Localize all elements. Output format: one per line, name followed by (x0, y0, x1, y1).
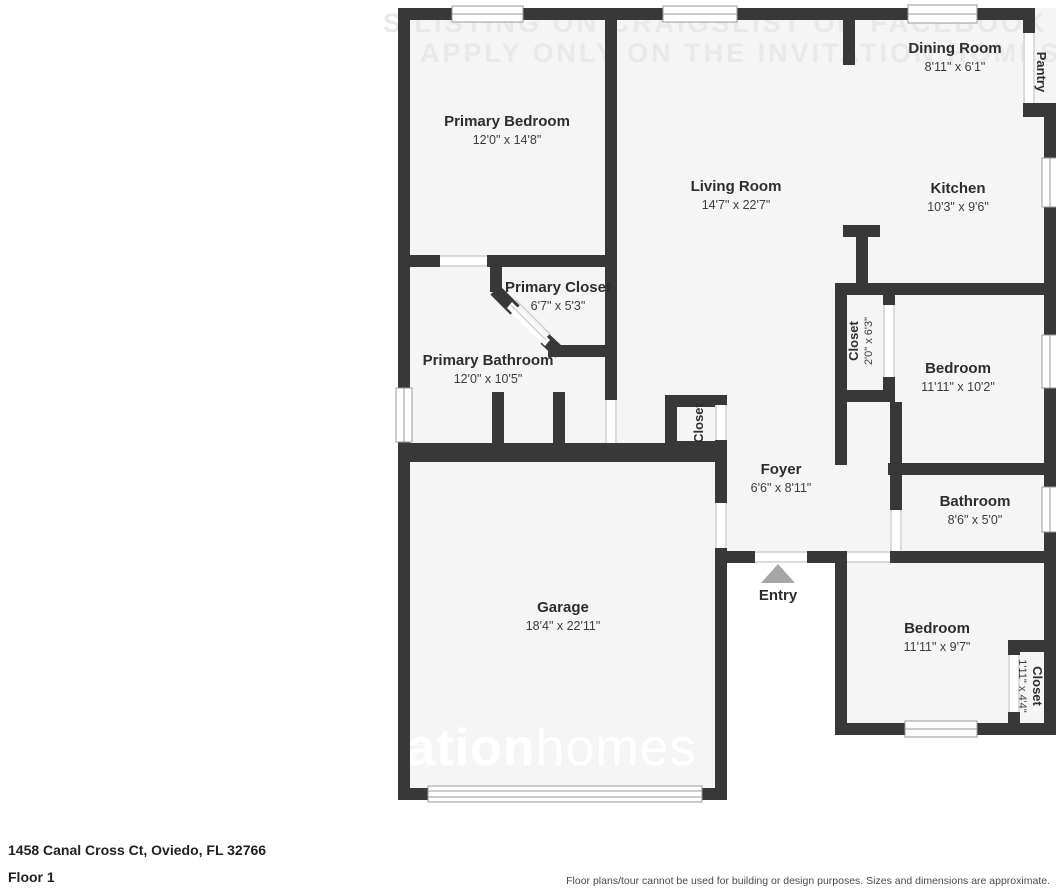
room-dims: 6'7" x 5'3" (500, 299, 616, 314)
room-name: Dining Room (875, 40, 1035, 59)
room-name: Primary Bedroom (407, 113, 607, 132)
floorplan-page: S LISTING ON CRAIGSLIST OR FACEBOOK MARK… (0, 0, 1056, 889)
room-name: Bathroom (895, 493, 1055, 512)
room-dims: 12'0" x 10'5" (398, 372, 578, 387)
room-label-primary-closet: Primary Closet 6'7" x 5'3" (500, 279, 616, 314)
room-label-dining-room: Dining Room 8'11" x 6'1" (875, 40, 1035, 75)
room-label-primary-bathroom: Primary Bathroom 12'0" x 10'5" (398, 352, 578, 387)
window-icon (663, 6, 737, 22)
room-label-entry: Entry (718, 587, 838, 606)
room-name: Living Room (636, 178, 836, 197)
room-dims: 2'0" x 6'3" (863, 317, 876, 365)
door-opening (755, 551, 807, 563)
disclaimer-text: Floor plans/tour cannot be used for buil… (566, 875, 1050, 887)
door-opening (440, 255, 487, 267)
room-label-living-room: Living Room 14'7" x 22'7" (636, 178, 836, 213)
room-label-pantry: Pantry (1033, 52, 1049, 92)
room-label-foyer: Foyer 6'6" x 8'11" (701, 461, 861, 496)
room-dims: 18'4" x 22'11" (463, 619, 663, 634)
room-dims: 8'6" x 5'0" (895, 513, 1055, 528)
room-dims: 1'11" x 4'4" (1015, 659, 1028, 712)
room-label-garage: Garage 18'4" x 22'11" (463, 599, 663, 634)
room-dims: 10'3" x 9'6" (878, 200, 1038, 215)
room-label-primary-bedroom: Primary Bedroom 12'0" x 14'8" (407, 113, 607, 148)
room-label-foyer-closet: Closet (691, 403, 707, 443)
room-dims: 6'6" x 8'11" (701, 481, 861, 496)
garage-door-icon (428, 786, 702, 802)
room-label-bathroom: Bathroom 8'6" x 5'0" (895, 493, 1055, 528)
room-label-kitchen: Kitchen 10'3" x 9'6" (878, 180, 1038, 215)
room-dims: 8'11" x 6'1" (875, 60, 1035, 75)
room-dims: 14'7" x 22'7" (636, 198, 836, 213)
room-label-hall-closet: Closet 2'0" x 6'3" (846, 317, 876, 365)
floor-label: Floor 1 (8, 869, 55, 885)
window-icon (905, 721, 977, 737)
room-label-bedroom-3: Bedroom 11'11" x 9'7" (857, 620, 1017, 655)
room-label-bedroom-2: Bedroom 11'11" x 10'2" (878, 360, 1038, 395)
room-dims: 12'0" x 14'8" (407, 133, 607, 148)
room-name: Closet (691, 403, 707, 443)
room-name: Closet (846, 317, 862, 365)
room-name: Kitchen (878, 180, 1038, 199)
door-opening (715, 503, 727, 548)
window-icon (1042, 335, 1056, 388)
room-name: Bedroom (857, 620, 1017, 639)
room-label-bedroom-3-closet: Closet 1'11" x 4'4" (1015, 659, 1045, 712)
room-name: Foyer (701, 461, 861, 480)
room-name: Primary Closet (500, 279, 616, 298)
window-icon (396, 388, 412, 442)
room-name: Closet (1029, 659, 1045, 712)
room-dims: 11'11" x 9'7" (857, 640, 1017, 655)
window-icon (1042, 158, 1056, 207)
room-name: Primary Bathroom (398, 352, 578, 371)
room-name: Entry (718, 587, 838, 606)
window-icon (908, 5, 977, 23)
room-name: Garage (463, 599, 663, 618)
room-name: Pantry (1033, 52, 1049, 92)
entry-arrow-icon (761, 564, 795, 583)
door-opening (715, 405, 727, 440)
door-opening (847, 551, 890, 563)
property-address: 1458 Canal Cross Ct, Oviedo, FL 32766 (8, 842, 266, 858)
room-name: Bedroom (878, 360, 1038, 379)
window-icon (452, 6, 523, 22)
door-opening (605, 400, 617, 443)
room-dims: 11'11" x 10'2" (878, 380, 1038, 395)
